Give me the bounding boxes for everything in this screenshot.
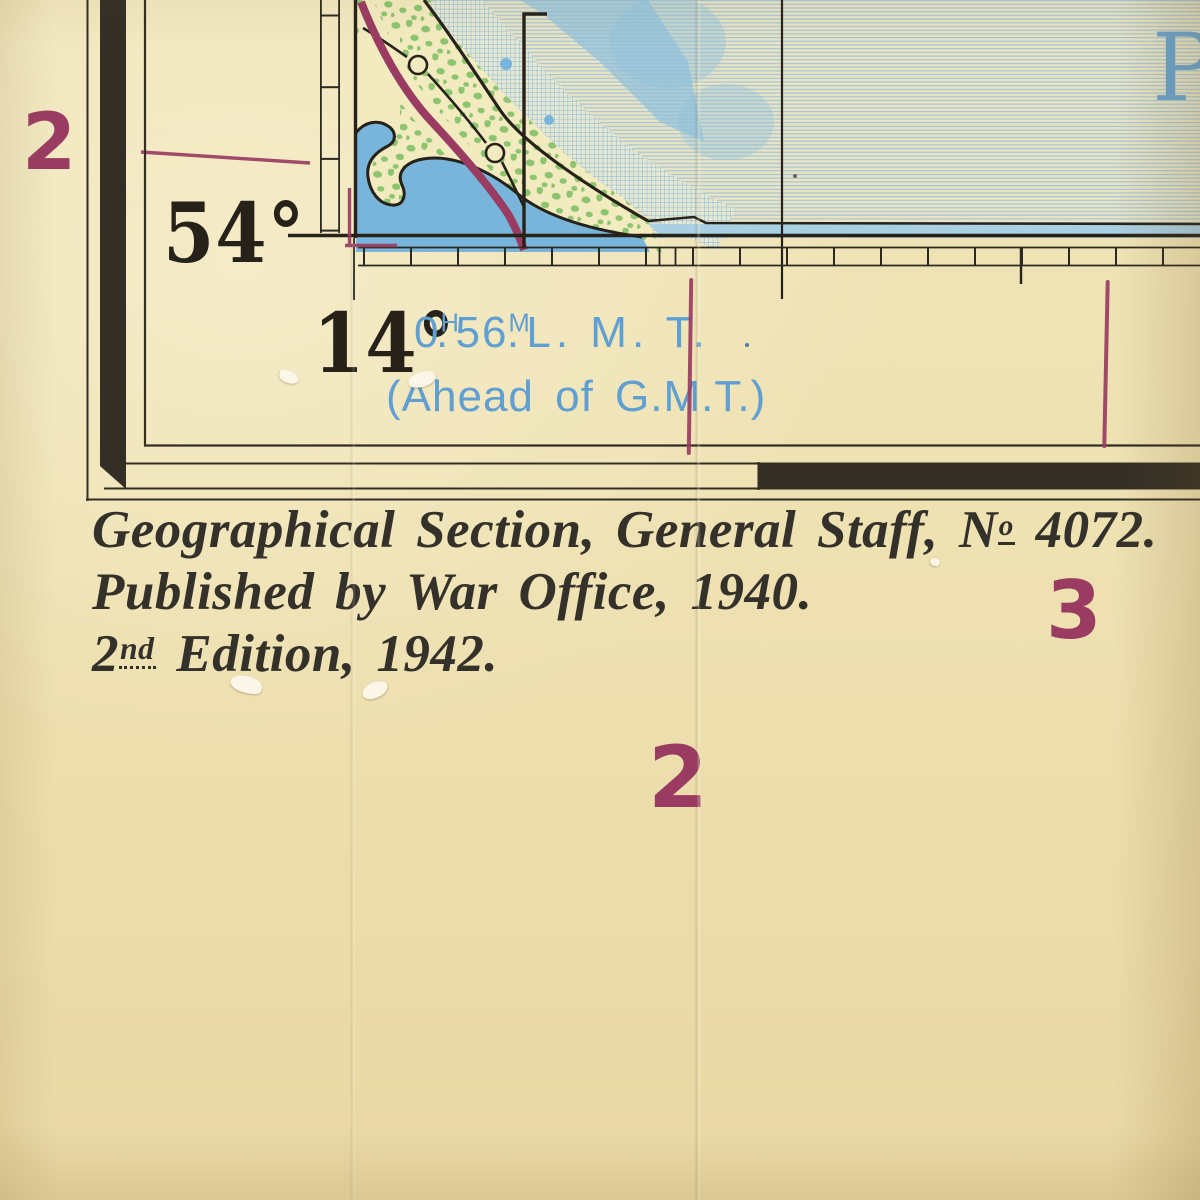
grid-row-tick-maroon: [141, 152, 310, 163]
gmt-offset-note: (Ahead of G.M.T.): [386, 372, 766, 422]
minute-scale-left: [320, 0, 340, 233]
frame-bar-left: [100, 0, 126, 464]
lmt-minutes: 56: [456, 308, 509, 357]
imprint-line-2: Published by War Office, 1940.: [92, 562, 812, 622]
imprint-line-1-text: Geographical Section, General Staff, N: [92, 501, 998, 559]
latitude-label: 54°: [163, 186, 305, 282]
lmt-zone: L. M. T.: [526, 308, 709, 357]
band-black-segment: [758, 463, 1200, 490]
paper-speck: [745, 343, 749, 347]
lmt-hours-dot: .: [436, 308, 450, 358]
local-mean-time-label: 0H.56M.L. M. T.: [414, 308, 710, 358]
grid-column-number-bottom: 2: [648, 728, 708, 828]
numero-superscript: o: [998, 510, 1015, 545]
paper-speck: [793, 174, 797, 178]
grid-column-number-right: 3: [1046, 564, 1102, 657]
minute-scale-bottom: [358, 247, 1200, 266]
map-face: [356, 0, 1200, 252]
edition-text: Edition, 1942.: [156, 625, 499, 683]
lmt-minutes-dot: .: [507, 308, 521, 358]
grid-row-number-left: 2: [22, 98, 76, 188]
imprint-line-1: Geographical Section, General Staff, No …: [92, 500, 1157, 560]
sea-name-partial-letter: P: [1146, 28, 1200, 124]
map-sheet-paper: 2 54° 14° 0H.56M.L. M. T. (Ahead of G.M.…: [0, 0, 1200, 1200]
edition-number: 2: [92, 625, 119, 683]
frame-bar-miter: [100, 464, 126, 489]
imprint-line-3: 2nd Edition, 1942.: [92, 624, 498, 684]
edition-ordinal-superscript: nd: [119, 631, 156, 669]
imprint-line-1-number: 4072.: [1015, 501, 1158, 559]
